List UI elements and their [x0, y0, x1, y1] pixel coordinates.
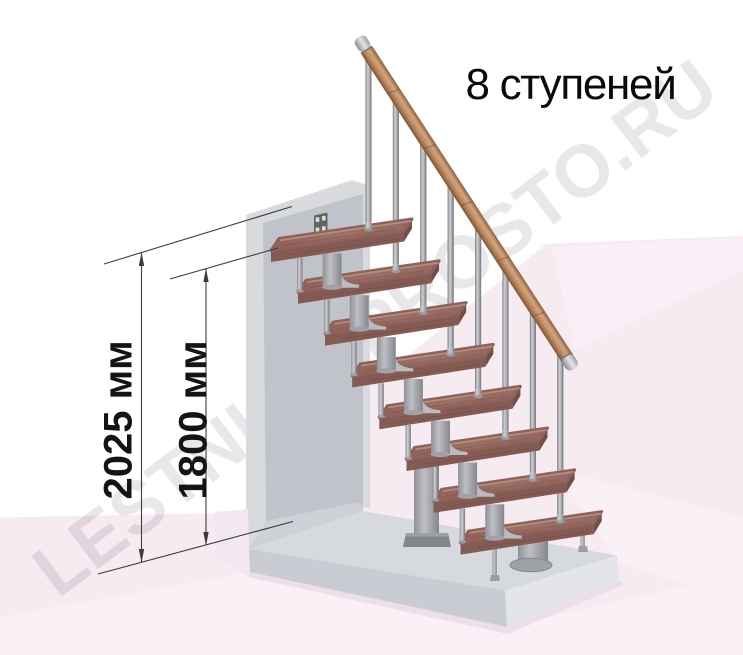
- svg-text:8 ступеней: 8 ступеней: [466, 60, 676, 109]
- svg-text:2025 мм: 2025 мм: [97, 340, 141, 499]
- svg-text:1800 мм: 1800 мм: [172, 340, 216, 499]
